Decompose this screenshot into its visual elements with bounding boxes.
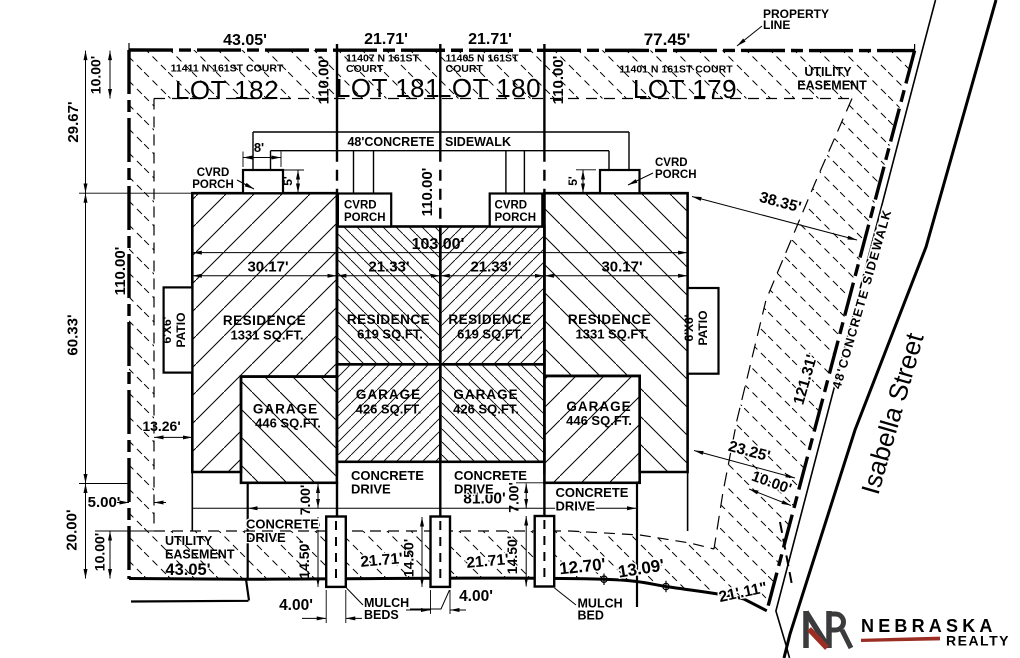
svg-text:LOT 179: LOT 179 (633, 74, 737, 104)
svg-text:PATIO: PATIO (696, 311, 710, 346)
svg-text:5': 5' (566, 176, 580, 186)
svg-text:14.50': 14.50' (401, 539, 417, 577)
svg-text:60.33': 60.33' (65, 314, 82, 355)
svg-text:43.05': 43.05' (223, 32, 267, 49)
svg-text:11411 N 161ST COURT: 11411 N 161ST COURT (171, 63, 284, 75)
svg-text:43.05': 43.05' (165, 561, 210, 579)
svg-text:CVRD: CVRD (197, 167, 230, 179)
svg-text:PORCH: PORCH (495, 212, 537, 224)
svg-text:10.00': 10.00' (92, 533, 108, 571)
svg-text:20.00': 20.00' (64, 509, 81, 550)
svg-text:UTILITY: UTILITY (165, 534, 213, 548)
svg-text:RESIDENCE: RESIDENCE (448, 312, 531, 327)
svg-text:619 SQ.FT.: 619 SQ.FT. (457, 327, 523, 342)
svg-text:GARAGE: GARAGE (453, 387, 518, 402)
svg-text:21.33': 21.33' (368, 259, 409, 276)
svg-text:CVRD: CVRD (495, 200, 528, 212)
svg-text:LOT 181: LOT 181 (336, 73, 440, 103)
svg-text:GARAGE: GARAGE (356, 387, 421, 402)
svg-text:110.00': 110.00' (419, 168, 436, 217)
svg-text:426 SQ.FT.: 426 SQ.FT. (356, 402, 422, 417)
svg-text:CVRD: CVRD (655, 157, 688, 169)
svg-text:DRIVE: DRIVE (454, 482, 494, 497)
svg-text:77.45': 77.45' (644, 30, 691, 49)
svg-text:6'X6': 6'X6' (160, 316, 174, 343)
svg-text:LOT 182: LOT 182 (175, 75, 279, 105)
svg-text:PORCH: PORCH (655, 169, 697, 181)
svg-text:21.33': 21.33' (470, 259, 511, 276)
svg-text:4.00': 4.00' (279, 597, 313, 614)
svg-text:1331 SQ.FT.: 1331 SQ.FT. (231, 328, 304, 343)
svg-text:CVRD: CVRD (344, 200, 377, 212)
svg-text:21.71': 21.71' (468, 31, 512, 48)
svg-text:30.17': 30.17' (601, 259, 642, 276)
svg-text:EASEMENT: EASEMENT (797, 79, 867, 93)
svg-text:103.00': 103.00' (412, 236, 465, 253)
svg-text:DRIVE: DRIVE (556, 499, 596, 514)
svg-text:4.00': 4.00' (459, 588, 493, 605)
svg-text:DRIVE: DRIVE (351, 482, 391, 497)
svg-text:EASEMENT: EASEMENT (165, 548, 235, 562)
svg-text:110.00': 110.00' (316, 56, 333, 105)
svg-text:RESIDENCE: RESIDENCE (347, 312, 430, 327)
svg-text:BED: BED (578, 609, 604, 623)
svg-text:6'X6': 6'X6' (682, 314, 696, 341)
svg-text:7.00': 7.00' (506, 482, 522, 513)
svg-text:GARAGE: GARAGE (566, 399, 631, 414)
svg-text:BEDS: BEDS (364, 608, 399, 622)
svg-text:5': 5' (281, 176, 295, 186)
svg-text:PORCH: PORCH (192, 179, 234, 191)
svg-text:RESIDENCE: RESIDENCE (223, 313, 306, 328)
svg-text:REALTY: REALTY (946, 633, 1010, 649)
svg-text:426 SQ.FT.: 426 SQ.FT. (453, 402, 519, 417)
svg-text:619 SQ.FT.: 619 SQ.FT. (357, 327, 423, 342)
svg-text:13.26': 13.26' (142, 418, 180, 434)
svg-text:446 SQ.FT.: 446 SQ.FT. (255, 416, 321, 431)
svg-text:14.50': 14.50' (296, 540, 312, 578)
svg-text:GARAGE: GARAGE (253, 402, 318, 417)
svg-text:29.67': 29.67' (65, 101, 82, 142)
svg-text:21.71': 21.71' (364, 31, 408, 48)
svg-text:LOT 180: LOT 180 (437, 73, 541, 103)
svg-text:DRIVE: DRIVE (246, 530, 286, 545)
svg-text:RESIDENCE: RESIDENCE (568, 312, 651, 327)
svg-text:110.00': 110.00' (112, 247, 129, 296)
svg-text:LINE: LINE (763, 18, 790, 32)
svg-text:48'CONCRETE: 48'CONCRETE (347, 135, 434, 149)
svg-text:UTILITY: UTILITY (804, 65, 852, 79)
svg-text:SIDEWALK: SIDEWALK (445, 135, 511, 149)
svg-text:5.00': 5.00' (88, 494, 121, 511)
svg-text:10.00': 10.00' (88, 56, 104, 94)
svg-text:7.00': 7.00' (297, 485, 313, 516)
svg-text:8': 8' (254, 140, 264, 155)
svg-text:30.17': 30.17' (247, 259, 288, 276)
svg-text:1331 SQ.FT.: 1331 SQ.FT. (576, 327, 649, 342)
svg-text:PORCH: PORCH (344, 212, 386, 224)
svg-text:PATIO: PATIO (174, 313, 188, 348)
svg-text:446 SQ.FT.: 446 SQ.FT. (566, 413, 632, 428)
svg-text:110.00': 110.00' (550, 56, 567, 105)
